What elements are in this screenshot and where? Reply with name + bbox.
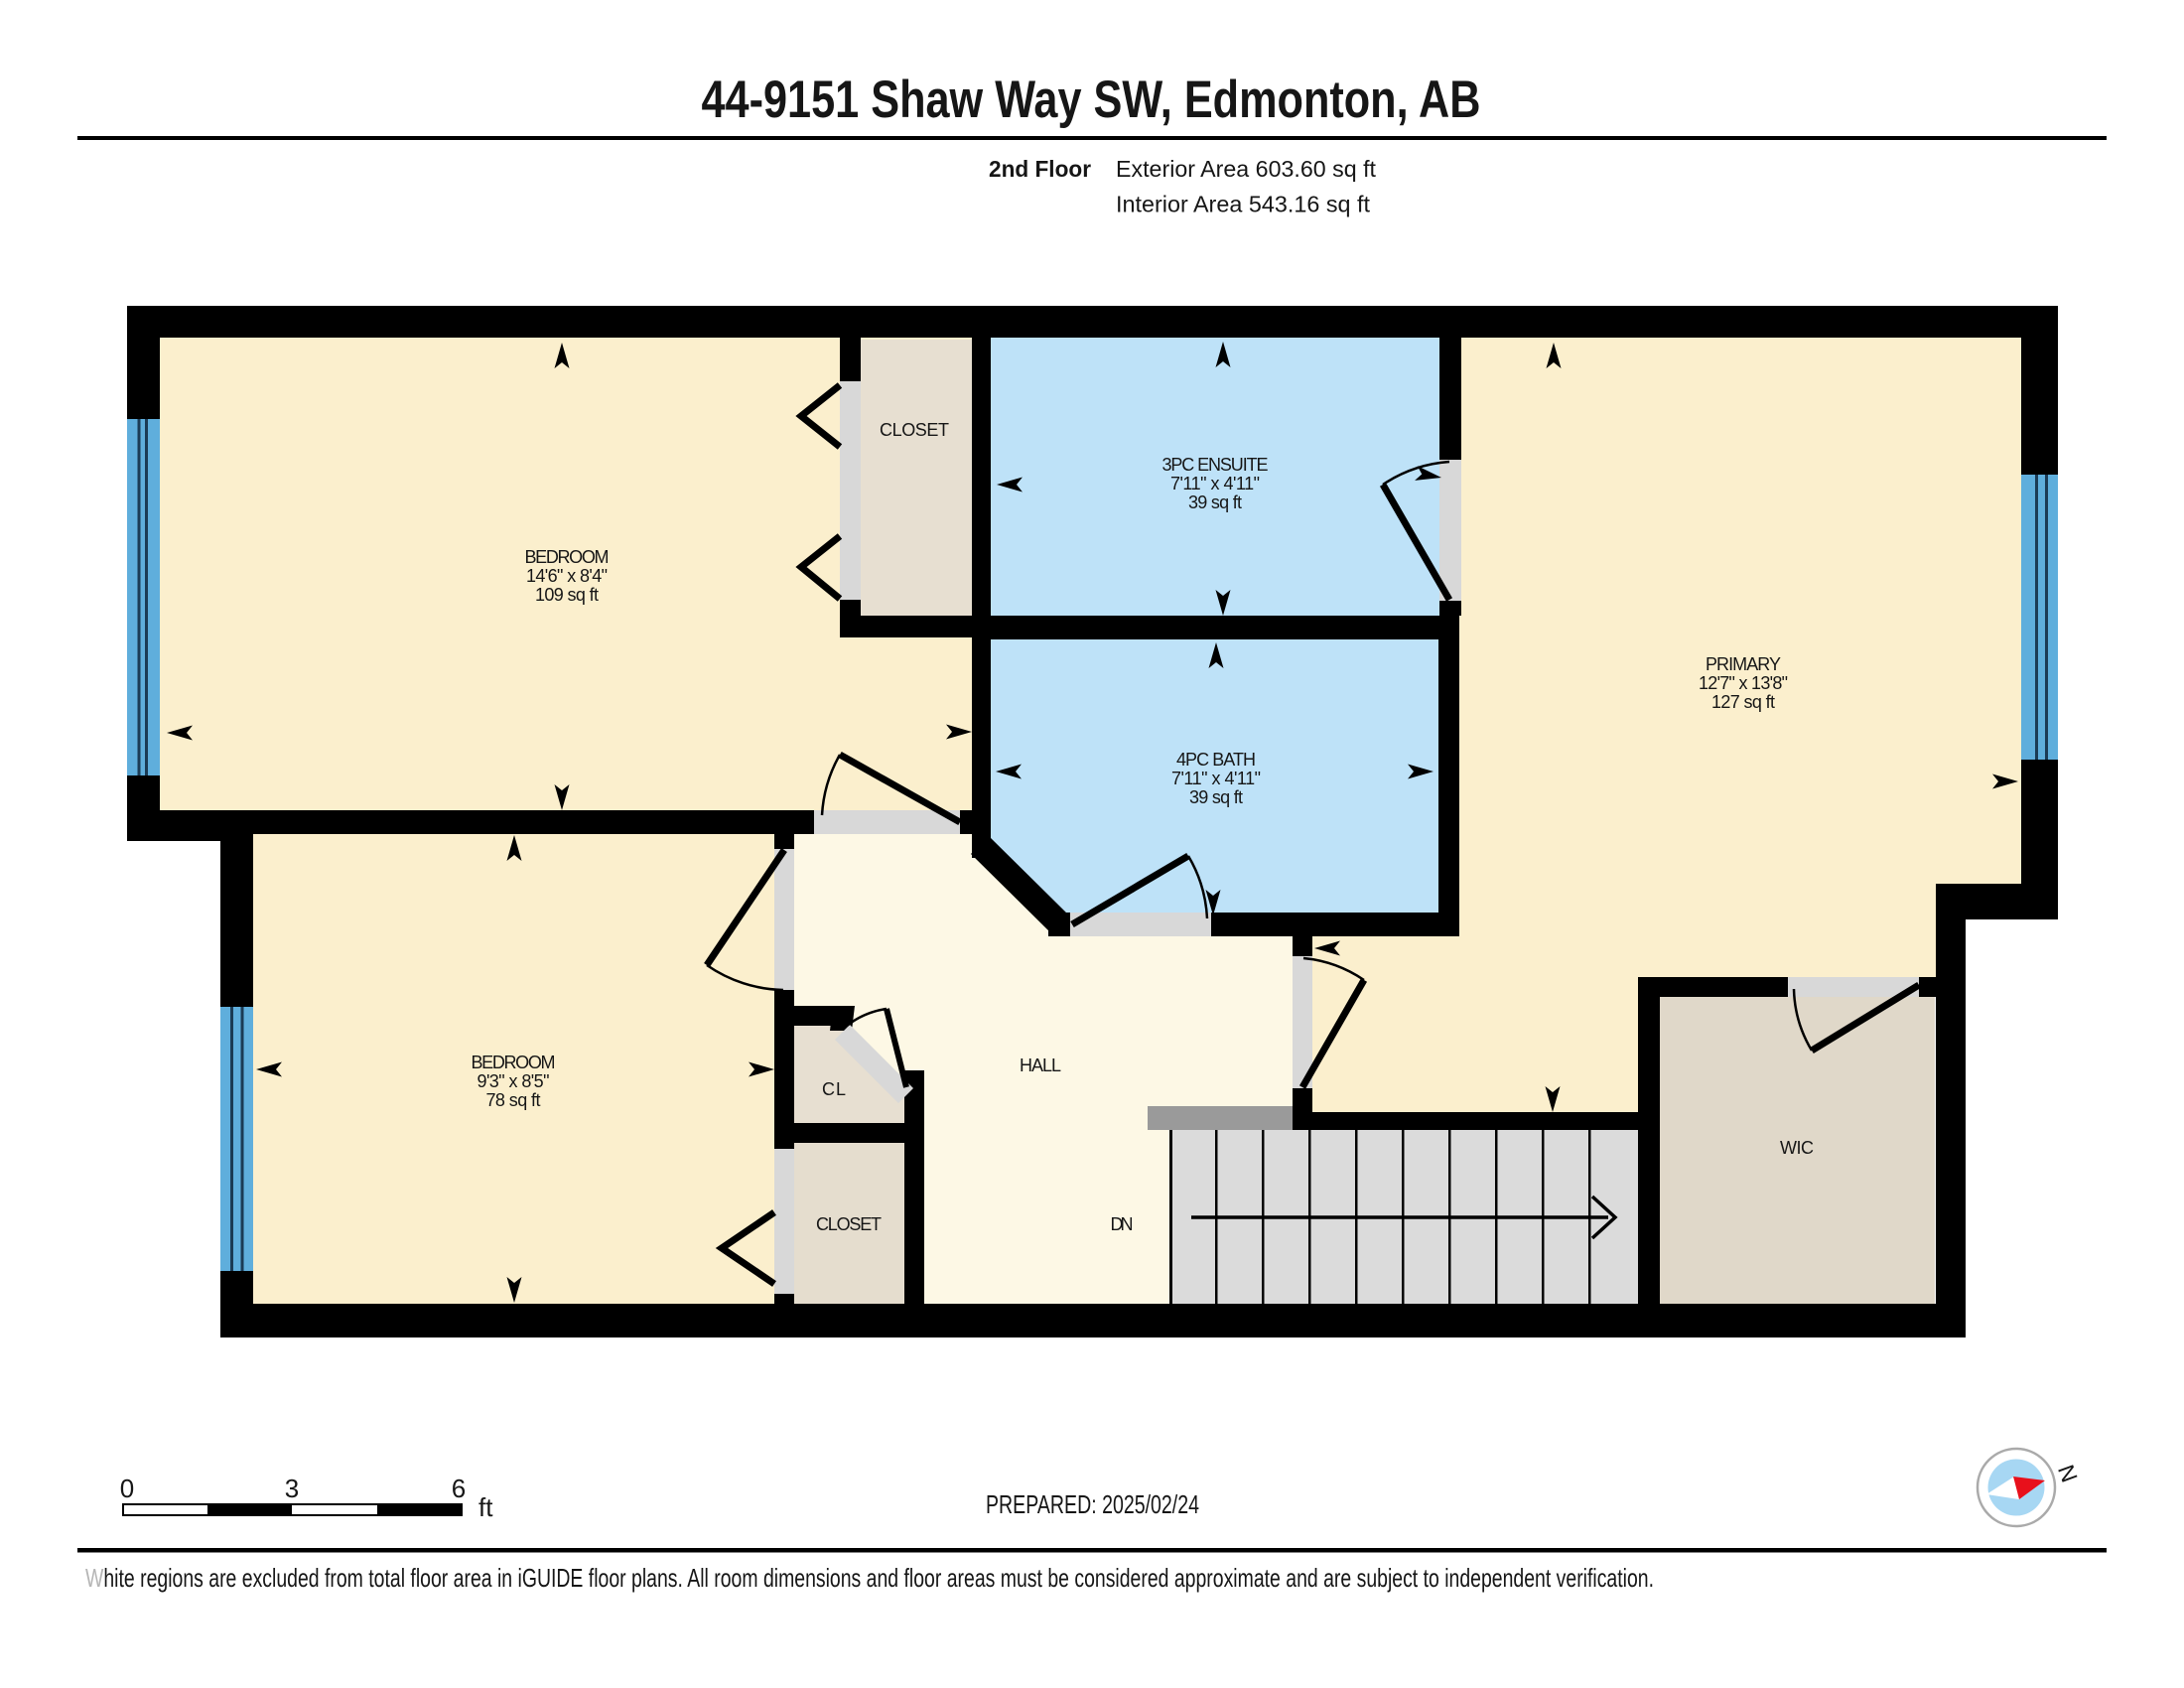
svg-text:3: 3 (285, 1474, 299, 1503)
svg-text:DN: DN (1111, 1214, 1134, 1234)
svg-text:9'3" x 8'5": 9'3" x 8'5" (478, 1071, 550, 1091)
svg-text:Interior Area 543.16 sq ft: Interior Area 543.16 sq ft (1116, 192, 1370, 217)
svg-text:7'11" x 4'11": 7'11" x 4'11" (1171, 769, 1261, 788)
svg-text:BEDROOM: BEDROOM (472, 1053, 556, 1072)
svg-text:3PC ENSUITE: 3PC ENSUITE (1162, 455, 1269, 475)
svg-text:CLOSET: CLOSET (816, 1214, 882, 1234)
svg-text:0: 0 (120, 1474, 134, 1503)
svg-text:PRIMARY: PRIMARY (1706, 654, 1781, 674)
svg-text:CL: CL (822, 1079, 846, 1099)
svg-text:WIC: WIC (1780, 1138, 1814, 1158)
svg-text:39 sq ft: 39 sq ft (1188, 492, 1242, 512)
svg-text:CLOSET: CLOSET (880, 420, 949, 440)
svg-text:7'11" x 4'11": 7'11" x 4'11" (1170, 474, 1260, 493)
svg-text:44-9151 Shaw Way SW, Edmonton,: 44-9151 Shaw Way SW, Edmonton, AB (702, 70, 1481, 129)
svg-text:HALL: HALL (1020, 1055, 1061, 1075)
svg-text:6: 6 (452, 1474, 466, 1503)
svg-text:14'6" x 8'4": 14'6" x 8'4" (526, 566, 608, 586)
svg-text:78 sq ft: 78 sq ft (486, 1090, 541, 1110)
svg-text:12'7" x 13'8": 12'7" x 13'8" (1699, 673, 1788, 693)
svg-text:White regions are excluded fro: White regions are excluded from total fl… (85, 1563, 1654, 1593)
svg-text:Exterior Area 603.60 sq ft: Exterior Area 603.60 sq ft (1116, 156, 1376, 182)
svg-text:4PC BATH: 4PC BATH (1176, 750, 1256, 770)
svg-text:BEDROOM: BEDROOM (525, 547, 610, 567)
svg-text:2nd Floor: 2nd Floor (989, 156, 1091, 182)
svg-text:127 sq ft: 127 sq ft (1711, 692, 1775, 712)
svg-text:ft: ft (478, 1492, 493, 1522)
svg-text:PREPARED: 2025/02/24: PREPARED: 2025/02/24 (986, 1489, 1199, 1519)
svg-text:109 sq ft: 109 sq ft (535, 585, 599, 605)
svg-text:39 sq ft: 39 sq ft (1189, 787, 1243, 807)
